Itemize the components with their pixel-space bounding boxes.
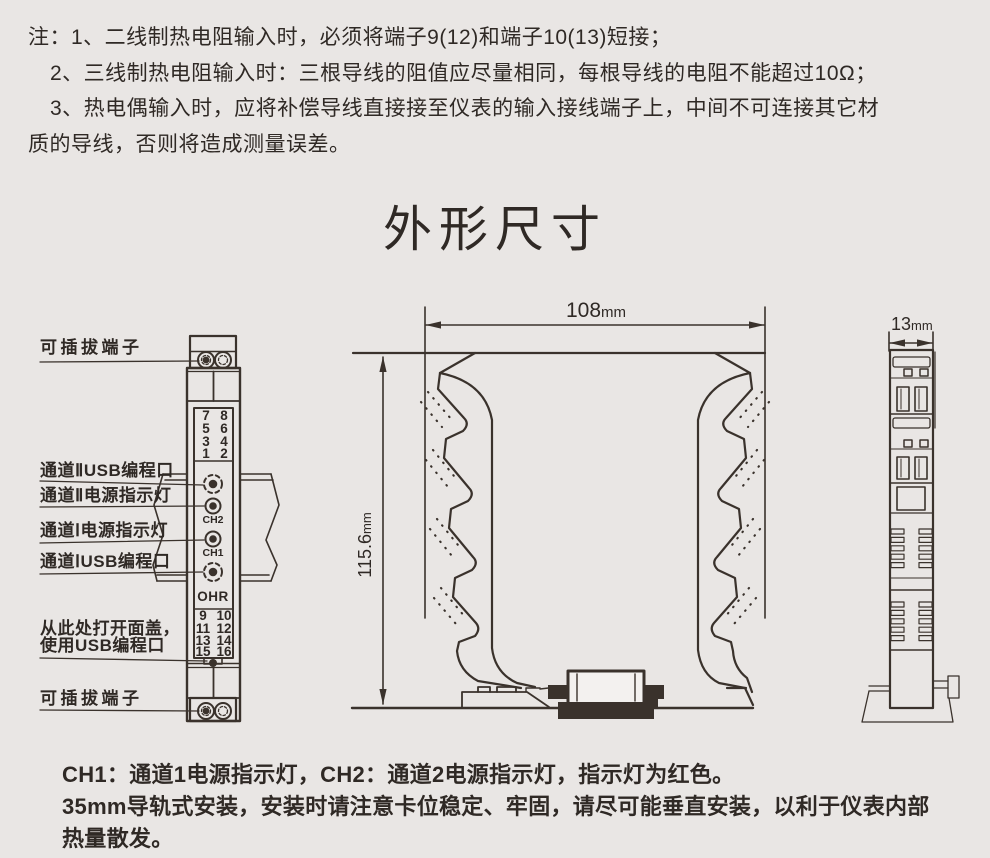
front-view-drawing: 可插拔端子 通道ⅡUSB编程口 通道Ⅱ电源指示灯 通道Ⅰ电源指示灯 通道ⅠUSB…: [39, 336, 279, 721]
svg-text:15: 15: [195, 644, 211, 659]
note-line-3: 3、热电偶输入时，应将补偿导线直接接至仪表的输入接线端子上，中间不可连接其它材: [28, 91, 978, 127]
page-title: 外形尺寸: [0, 190, 990, 261]
note-line-4: 质的导线，否则将造成测量误差。: [28, 127, 978, 163]
led-ch2-icon: [206, 499, 221, 514]
usb-port-ch1-icon: [204, 563, 222, 581]
note-line-2: 2、三线制热电阻输入时：三根导线的阻值应尽量相同，每根导线的电阻不能超过10Ω；: [28, 56, 978, 92]
end-view-drawing: 13mm: [862, 314, 959, 722]
svg-text:2: 2: [220, 446, 228, 461]
module-front-body: [187, 336, 240, 721]
din-rail-behind: [153, 474, 279, 581]
footer-line-3: 热量散发。: [62, 823, 972, 855]
end-clip-and-rail: [862, 676, 959, 722]
label-pluggable-terminal-bottom: 可插拔端子: [40, 688, 143, 708]
footer-paragraph: CH1：通道1电源指示灯，CH2：通道2电源指示灯，指示灯为红色。 35mm导轨…: [62, 759, 972, 855]
footer-line-2: 35mm导轨式安装，安装时请注意卡位稳定、牢固，请尽可能垂直安装，以利于仪表内部: [62, 791, 972, 823]
svg-text:16: 16: [216, 644, 232, 659]
dimension-drawings: 可插拔端子 通道ⅡUSB编程口 通道Ⅱ电源指示灯 通道Ⅰ电源指示灯 通道ⅠUSB…: [0, 280, 990, 745]
usb-port-ch2-icon: [204, 475, 222, 493]
label-open-cover-1: 从此处打开面盖，: [40, 618, 180, 638]
dim-height-label: 115.6mm: [355, 512, 375, 577]
label-open-cover-2: 使用USB编程口: [39, 635, 165, 655]
terminal-numbers-bottom: 910 1112 1314 1516: [195, 608, 232, 659]
terminal-screws-bottom: [198, 703, 231, 719]
terminal-numbers-top: 78 56 34 12: [202, 408, 228, 461]
terminal-screws-top: [198, 352, 231, 368]
led-ch1-icon: [206, 532, 221, 547]
label-ch1-power-led: 通道Ⅰ电源指示灯: [40, 520, 168, 540]
vent-slots-lower: [891, 602, 932, 641]
footer-line-1: CH1：通道1电源指示灯，CH2：通道2电源指示灯，指示灯为红色。: [62, 759, 972, 791]
module-side-profile: [353, 353, 765, 705]
dim-depth: [889, 332, 933, 351]
side-view-drawing: 108mm 115.6mm: [352, 299, 769, 719]
knurl-dots: [421, 392, 769, 624]
vent-slots-upper: [891, 529, 932, 568]
label-ch1: CH1: [202, 547, 223, 559]
usb-cover-window: [897, 487, 925, 510]
module-end-body: [890, 350, 935, 708]
dim-width-label: 108mm: [566, 299, 626, 322]
label-ch2-power-led: 通道Ⅱ电源指示灯: [40, 485, 171, 505]
svg-text:1: 1: [202, 446, 210, 461]
label-ch2: CH2: [202, 514, 223, 526]
note-line-1: 注：1、二线制热电阻输入时，必须将端子9(12)和端子10(13)短接；: [28, 20, 978, 56]
brand-logo: OHR: [197, 589, 229, 604]
label-ch1-usb-port: 通道ⅠUSB编程口: [40, 551, 170, 571]
notes-paragraph: 注：1、二线制热电阻输入时，必须将端子9(12)和端子10(13)短接； 2、三…: [28, 20, 978, 162]
label-ch2-usb-port: 通道ⅡUSB编程口: [40, 460, 174, 480]
label-pluggable-terminal-top: 可插拔端子: [40, 337, 143, 357]
din-latch: [462, 687, 557, 707]
dim-depth-label: 13mm: [891, 314, 933, 334]
din-rail-clip: [548, 671, 664, 719]
